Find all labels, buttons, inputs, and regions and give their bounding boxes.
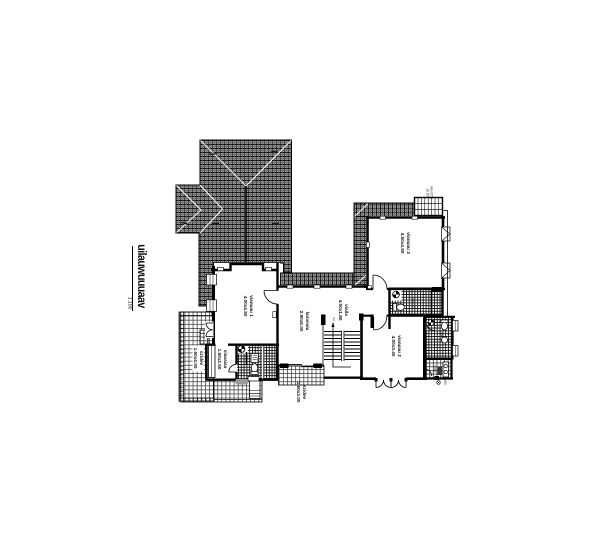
svg-text:1:100: 1:100 xyxy=(127,297,133,310)
svg-text:vianuau 14.00x4.50: vianuau 14.00x4.50 xyxy=(243,295,254,317)
svg-text:viaiu 2: viaiu 2 xyxy=(411,298,415,308)
svg-text:uilauwuuuaav: uilauwuuuaav xyxy=(135,244,148,309)
svg-text:viaiu 3: viaiu 3 xyxy=(439,332,443,342)
svg-text:uu: uu xyxy=(332,317,336,321)
svg-text:inaiv: inaiv xyxy=(433,366,437,373)
svg-text:viauaiaa1.50x2.50: viauaiaa1.50x2.50 xyxy=(217,349,228,370)
svg-text:lainviaiu2.90x5.00: lainviaiu2.90x5.00 xyxy=(299,311,310,332)
svg-text:viaiu 1: viaiu 1 xyxy=(256,356,260,366)
svg-text:vianuau 24.00x3.40: vianuau 24.00x3.40 xyxy=(391,335,402,357)
svg-text:vianuau 34.50x4.50: vianuau 34.50x4.50 xyxy=(400,232,411,254)
svg-text:o50: o50 xyxy=(443,379,447,385)
